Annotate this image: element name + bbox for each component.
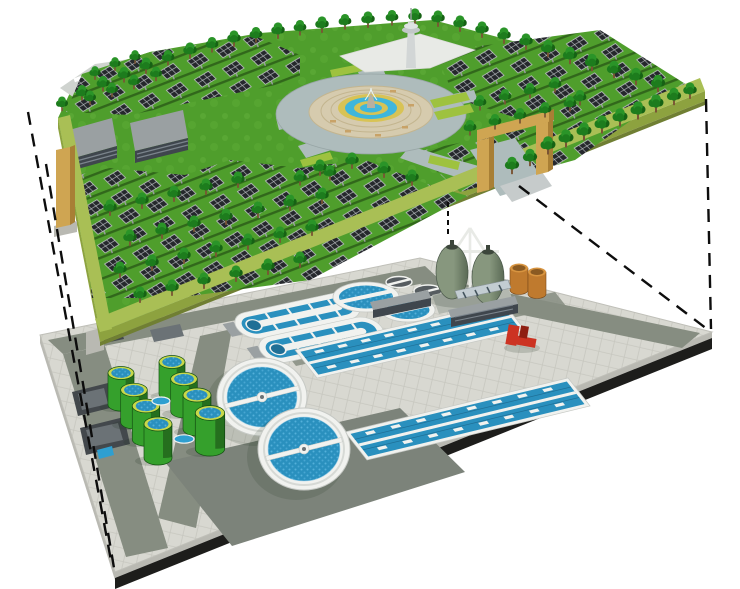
storage-tanks xyxy=(510,264,546,299)
ground-basin xyxy=(152,397,170,405)
left-gate-column xyxy=(54,145,77,237)
projection-line xyxy=(706,99,711,329)
ground-basin xyxy=(174,435,194,443)
scene-svg xyxy=(0,0,740,589)
cutaway-illustration xyxy=(0,0,740,589)
